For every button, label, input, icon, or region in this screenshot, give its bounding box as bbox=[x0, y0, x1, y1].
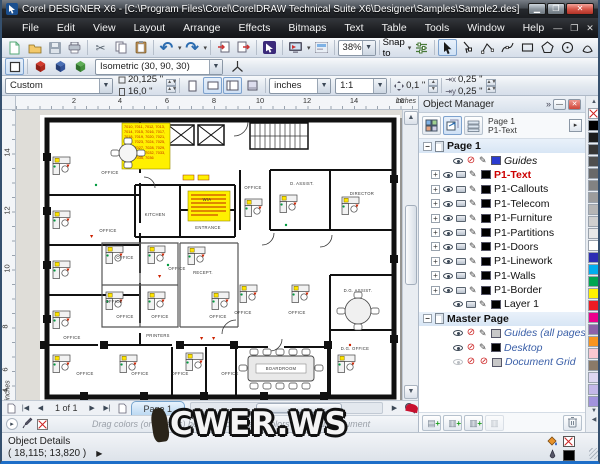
docker-toolbar: Page 1 P1-Text ▸ bbox=[419, 113, 585, 139]
edit-icon[interactable]: ✎ bbox=[469, 257, 478, 266]
color-swatch[interactable] bbox=[588, 264, 600, 275]
undo-dropdown[interactable]: ▾ bbox=[178, 44, 182, 52]
layer-color-chip[interactable] bbox=[481, 199, 491, 208]
layer-color-chip[interactable] bbox=[491, 156, 501, 165]
all-pages-button[interactable] bbox=[223, 77, 242, 94]
horizontal-ruler[interactable]: 2 4 6 8 10 12 14 16 inches bbox=[16, 96, 418, 110]
layer-name[interactable]: P1-Linework bbox=[494, 255, 552, 267]
room-label: D. ASSIST. bbox=[290, 181, 314, 186]
print-button[interactable] bbox=[65, 39, 84, 56]
room-label: BOARDROOM bbox=[266, 366, 297, 371]
edit-icon[interactable]: ✎ bbox=[469, 170, 478, 179]
ruler-origin[interactable] bbox=[2, 96, 16, 110]
room-label: OFFICE bbox=[116, 255, 133, 260]
palette-scroll-up[interactable]: ▲ bbox=[588, 98, 600, 107]
polygon-tool[interactable] bbox=[538, 39, 557, 56]
close-button[interactable]: ✕ bbox=[566, 3, 594, 15]
visibility-icon[interactable] bbox=[453, 345, 463, 351]
axis-icon[interactable] bbox=[228, 58, 247, 75]
visibility-icon[interactable] bbox=[443, 201, 453, 207]
menu-help[interactable]: Help bbox=[514, 19, 554, 37]
import-button[interactable] bbox=[214, 39, 233, 56]
visibility-icon[interactable] bbox=[443, 273, 453, 279]
room-label: OFFICE bbox=[99, 228, 116, 233]
room-label: OFFICE bbox=[209, 314, 226, 319]
nudge-spin2[interactable]: ▼ bbox=[428, 86, 438, 93]
room-label: ENTRANCE bbox=[195, 225, 220, 230]
export-button[interactable] bbox=[234, 39, 253, 56]
palette-flyout[interactable]: ◀ bbox=[588, 416, 600, 425]
edit-icon[interactable]: ✎ bbox=[469, 214, 478, 223]
h-tick: 2 bbox=[72, 96, 76, 105]
no-edit-icon[interactable]: ⊘ bbox=[479, 357, 489, 367]
preset-value: Custom bbox=[10, 80, 43, 91]
orthographic-button[interactable] bbox=[5, 58, 24, 75]
layer-row[interactable]: +✎ P1-Border bbox=[419, 283, 585, 297]
print-icon[interactable] bbox=[456, 272, 466, 279]
room-label: WIA bbox=[203, 197, 212, 202]
redo-button[interactable]: ↷ bbox=[183, 39, 202, 56]
layer-row[interactable]: +✎ P1-Linework bbox=[419, 254, 585, 268]
edit-icon[interactable]: ✎ bbox=[479, 329, 488, 338]
drawing-canvas[interactable]: 7010, 7011, 7012, 7013, 7014, 7015, 7016… bbox=[16, 110, 402, 400]
print-icon[interactable] bbox=[466, 301, 476, 308]
expand-icon[interactable]: + bbox=[431, 214, 440, 223]
v-ruler-unit: inches bbox=[5, 380, 12, 400]
room-label: D.G. OFFICE bbox=[341, 346, 369, 351]
next-page-button[interactable]: ▶ bbox=[86, 402, 99, 414]
nudge-field[interactable]: 0,1 " bbox=[394, 80, 425, 91]
color-swatch[interactable] bbox=[588, 312, 600, 323]
layer-name[interactable]: Layer 1 bbox=[504, 298, 539, 310]
menu-effects[interactable]: Effects bbox=[229, 19, 279, 37]
visibility-icon[interactable] bbox=[443, 230, 453, 236]
layer-name[interactable]: P1-Border bbox=[494, 284, 542, 296]
room-label: OFFICE bbox=[63, 335, 80, 340]
drawing-page[interactable]: 7010, 7011, 7012, 7013, 7014, 7015, 7016… bbox=[40, 115, 400, 400]
zoom-level-value: 38% bbox=[343, 42, 362, 53]
dup-spin-up[interactable]: ▲▼ bbox=[486, 79, 496, 86]
room-label: OFFICE bbox=[116, 314, 133, 319]
vertical-scrollbar[interactable]: ▲ ▼ bbox=[402, 110, 418, 400]
layer-color-chip[interactable] bbox=[481, 242, 491, 251]
visibility-icon[interactable] bbox=[443, 186, 453, 192]
pick-tool[interactable] bbox=[438, 39, 457, 56]
color-swatch[interactable] bbox=[588, 240, 600, 251]
paste-button[interactable] bbox=[131, 39, 150, 56]
color-swatch[interactable] bbox=[588, 120, 600, 131]
preset-combo[interactable]: Custom▼ bbox=[5, 78, 113, 94]
preview-dropdown[interactable]: ▾ bbox=[307, 44, 311, 52]
restore-button[interactable]: ❐ bbox=[547, 3, 565, 15]
page-node[interactable]: − Page 1 bbox=[419, 139, 585, 153]
room-label: OFFICE bbox=[171, 371, 188, 376]
copy-button[interactable] bbox=[111, 39, 130, 56]
curve-tool[interactable] bbox=[478, 39, 497, 56]
fullscreen-preview-button[interactable] bbox=[286, 39, 305, 56]
h-ruler-unit: inches bbox=[396, 98, 416, 105]
menu-layout[interactable]: Layout bbox=[125, 19, 175, 37]
no-print-icon[interactable]: ⊘ bbox=[466, 328, 476, 338]
menu-edit[interactable]: Edit bbox=[48, 19, 84, 37]
palette-scroll-down[interactable]: ▼ bbox=[588, 407, 600, 416]
layer-color-chip[interactable] bbox=[481, 185, 491, 194]
room-label: OFFICE bbox=[151, 314, 168, 319]
layer-color-chip[interactable] bbox=[481, 228, 491, 237]
no-print-icon[interactable]: ⊘ bbox=[466, 343, 476, 353]
layer-name[interactable]: Document Grid bbox=[505, 356, 576, 368]
color-swatch[interactable] bbox=[588, 216, 600, 227]
new-document-button[interactable] bbox=[5, 39, 24, 56]
print-icon[interactable] bbox=[456, 243, 466, 250]
minimize-button[interactable]: ▁ bbox=[528, 3, 546, 15]
size-spin-up[interactable]: ▲▼ bbox=[166, 79, 176, 86]
vertical-scroll-thumb[interactable] bbox=[405, 205, 417, 285]
fill-color-indicator[interactable] bbox=[563, 436, 575, 447]
layer-row[interactable]: +✎ P1-Doors bbox=[419, 240, 585, 254]
vertical-ruler[interactable]: 14 12 10 8 6 4 inches bbox=[2, 110, 16, 400]
menu-bar: File Edit View Layout Arrange Effects Bi… bbox=[2, 18, 598, 38]
add-page-end-button[interactable] bbox=[116, 402, 129, 414]
layer-row[interactable]: +✎ P1-Furniture bbox=[419, 211, 585, 225]
room-label: OFFICE bbox=[288, 310, 305, 315]
new-master-layer-even-button: ▥ bbox=[485, 415, 504, 431]
bezier-tool[interactable] bbox=[498, 39, 517, 56]
current-page-button[interactable] bbox=[243, 77, 262, 94]
layer-row[interactable]: +✎ P1-Callouts bbox=[419, 182, 585, 196]
units-value: inches bbox=[274, 80, 301, 91]
master-page-node[interactable]: − Master Page bbox=[419, 312, 585, 326]
visibility-icon[interactable] bbox=[453, 330, 463, 336]
room-label: OFFICE bbox=[244, 185, 261, 190]
layer-color-chip[interactable] bbox=[481, 214, 491, 223]
color-swatch[interactable] bbox=[588, 156, 600, 167]
docker-title: Object Manager bbox=[423, 99, 494, 110]
expand-icon[interactable]: + bbox=[431, 199, 440, 208]
layer-name[interactable]: P1-Callouts bbox=[494, 183, 548, 195]
layer-color-chip[interactable] bbox=[491, 343, 501, 352]
v-tick: 8 bbox=[1, 324, 10, 328]
room-label: D.G. ASSIST. bbox=[344, 288, 373, 293]
page-width-field[interactable]: 20,125 " bbox=[118, 74, 163, 85]
open-button[interactable] bbox=[25, 39, 44, 56]
rectangle-tool[interactable] bbox=[518, 39, 537, 56]
resize-grip[interactable] bbox=[589, 448, 600, 459]
bspline-tool[interactable] bbox=[578, 39, 597, 56]
edit-icon[interactable]: ✎ bbox=[479, 300, 488, 309]
palette-flyout-button[interactable]: ▸ bbox=[6, 418, 18, 430]
expand-icon[interactable]: + bbox=[431, 170, 440, 179]
layer-color-chip[interactable] bbox=[481, 271, 491, 280]
object-manager-docker: Object Manager » — ✕ Page 1 P1-Text ▸ bbox=[418, 96, 585, 432]
add-page-start-button[interactable] bbox=[4, 402, 17, 414]
room-label: DIRECTOR bbox=[350, 191, 374, 196]
menu-bitmaps[interactable]: Bitmaps bbox=[279, 19, 335, 37]
edit-icon[interactable]: ✎ bbox=[469, 242, 478, 251]
save-button[interactable] bbox=[45, 39, 64, 56]
edit-icon[interactable]: ✎ bbox=[469, 185, 478, 194]
layer-row[interactable]: ⊘⊘ Document Grid bbox=[419, 355, 585, 369]
application-launcher-button[interactable] bbox=[260, 39, 279, 56]
layer-name-active[interactable]: P1-Text bbox=[494, 169, 531, 181]
units-combo[interactable]: inches▼ bbox=[269, 78, 331, 94]
new-master-layer-odd-button[interactable]: ▥+ bbox=[464, 415, 483, 431]
no-print-icon[interactable]: ⊘ bbox=[466, 156, 476, 166]
edit-across-layers-button[interactable] bbox=[443, 116, 462, 135]
size-spin-down[interactable]: ▲▼ bbox=[166, 86, 176, 93]
room-label: OFFICE bbox=[221, 371, 238, 376]
status-expand-arrow[interactable]: ▶ bbox=[96, 449, 102, 458]
layer-color-chip[interactable] bbox=[491, 300, 501, 309]
edit-icon[interactable]: ✎ bbox=[469, 271, 478, 280]
snap-to-dropdown[interactable]: Snap to▾ bbox=[383, 37, 412, 59]
visibility-icon[interactable] bbox=[453, 158, 463, 164]
no-print-icon[interactable]: ⊘ bbox=[466, 357, 476, 367]
print-icon[interactable] bbox=[456, 171, 466, 178]
first-page-button[interactable]: |◀ bbox=[19, 402, 32, 414]
page-icon bbox=[435, 313, 444, 324]
projection-combo-arrow[interactable]: ▼ bbox=[209, 60, 222, 74]
edit-icon[interactable]: ✎ bbox=[469, 199, 478, 208]
menu-table[interactable]: Table bbox=[373, 19, 416, 37]
edit-icon[interactable]: ✎ bbox=[479, 156, 488, 165]
page-indicator: 1 of 1 bbox=[49, 403, 84, 413]
window-title: Corel DESIGNER X6 - [C:\Program Files\Co… bbox=[22, 4, 519, 15]
v-tick: 10 bbox=[3, 264, 12, 272]
status-label: Object Details bbox=[8, 436, 70, 447]
app-window: Corel DESIGNER X6 - [C:\Program Files\Co… bbox=[0, 0, 600, 464]
edit-icon[interactable]: ✎ bbox=[469, 228, 478, 237]
color-swatch[interactable] bbox=[588, 384, 600, 395]
h-tick: 14 bbox=[350, 96, 358, 105]
snap-to-label: Snap to bbox=[383, 37, 405, 59]
layer-name[interactable]: P1-Walls bbox=[494, 270, 536, 282]
collapse-icon[interactable]: − bbox=[423, 142, 432, 151]
color-swatch[interactable] bbox=[588, 144, 600, 155]
zoom-combo-arrow[interactable]: ▼ bbox=[362, 41, 375, 55]
color-swatch[interactable] bbox=[588, 276, 600, 287]
color-swatch[interactable] bbox=[588, 192, 600, 203]
layer-row[interactable]: ⊘✎ Desktop bbox=[419, 340, 585, 354]
color-swatch[interactable] bbox=[588, 300, 600, 311]
print-icon[interactable] bbox=[456, 186, 466, 193]
visibility-icon-disabled[interactable] bbox=[453, 359, 463, 365]
drawing-scale-combo[interactable]: 1:1▼ bbox=[335, 78, 387, 94]
print-icon[interactable] bbox=[456, 200, 466, 207]
expand-icon[interactable]: + bbox=[431, 271, 440, 280]
layer-row[interactable]: +✎ P1-Text bbox=[419, 168, 585, 182]
title-bar: Corel DESIGNER X6 - [C:\Program Files\Co… bbox=[2, 0, 598, 18]
color-swatch[interactable] bbox=[588, 168, 600, 179]
layer-color-chip[interactable] bbox=[492, 358, 502, 367]
app-icon bbox=[6, 3, 18, 15]
delete-layer-button[interactable] bbox=[563, 415, 582, 431]
color-swatch[interactable] bbox=[588, 132, 600, 143]
visibility-icon[interactable] bbox=[443, 258, 453, 264]
layer-name[interactable]: P1-Furniture bbox=[494, 212, 552, 224]
fill-icon bbox=[546, 435, 559, 447]
color-swatch[interactable] bbox=[588, 252, 600, 263]
page-node-label: Page 1 bbox=[447, 140, 481, 152]
expand-icon[interactable]: + bbox=[431, 286, 440, 295]
master-page-label: Master Page bbox=[447, 313, 509, 325]
layer-name[interactable]: Guides (all pages) bbox=[504, 327, 585, 339]
ellipse-tool[interactable] bbox=[558, 39, 577, 56]
zoom-level-combo[interactable]: 38%▼ bbox=[338, 40, 376, 56]
cube-top-button[interactable] bbox=[31, 58, 50, 75]
room-label: OFFICE bbox=[76, 371, 93, 376]
layer-name[interactable]: P1-Telecom bbox=[494, 198, 549, 210]
layer-name[interactable]: P1-Partitions bbox=[494, 227, 554, 239]
layer-row[interactable]: +✎ P1-Partitions bbox=[419, 225, 585, 239]
welcome-screen-button[interactable] bbox=[312, 39, 331, 56]
menu-window[interactable]: Window bbox=[458, 19, 513, 37]
duplicate-x-field[interactable]: ⇥x0,25 " bbox=[445, 74, 482, 85]
undo-button[interactable]: ↶ bbox=[157, 39, 176, 56]
new-master-layer-all-button[interactable]: ▥+ bbox=[443, 415, 462, 431]
visibility-icon[interactable] bbox=[443, 287, 453, 293]
v-tick: 14 bbox=[3, 148, 12, 156]
dup-spin-down[interactable]: ▲▼ bbox=[486, 86, 496, 93]
scroll-down-button[interactable]: ▼ bbox=[404, 385, 418, 399]
room-label: RECEPT. bbox=[193, 270, 213, 275]
scroll-up-button[interactable]: ▲ bbox=[404, 111, 418, 125]
room-label: OFFICE bbox=[168, 266, 185, 271]
color-swatch[interactable] bbox=[588, 336, 600, 347]
room-label: KITCHEN bbox=[145, 212, 165, 217]
collapse-icon[interactable]: − bbox=[423, 314, 432, 323]
projected-axes-combo[interactable]: Isometric (30, 90, 30)▼ bbox=[95, 59, 223, 75]
print-icon[interactable] bbox=[456, 229, 466, 236]
menu-file[interactable]: File bbox=[13, 19, 48, 37]
color-swatch[interactable] bbox=[588, 288, 600, 299]
room-label: PRINTERS bbox=[146, 333, 170, 338]
no-fill-swatch[interactable] bbox=[588, 108, 600, 119]
docker-close-button[interactable]: ✕ bbox=[568, 99, 581, 110]
print-icon[interactable] bbox=[456, 258, 466, 265]
eyedropper-icon[interactable] bbox=[22, 417, 33, 431]
cursor-coordinates: ( 18,115; 13,820 ) bbox=[8, 448, 86, 459]
visibility-icon[interactable] bbox=[443, 244, 453, 250]
layer-row[interactable]: ✎ Layer 1 bbox=[419, 297, 585, 311]
expand-icon[interactable]: + bbox=[431, 242, 440, 251]
h-tick: 10 bbox=[256, 96, 264, 105]
docker-flyout-chevron[interactable]: » bbox=[546, 99, 551, 109]
last-page-button[interactable]: ▶| bbox=[101, 402, 114, 414]
layer-tree: − Page 1 ⊘✎ Guides +✎ P1-Text +✎ P1-Call… bbox=[419, 139, 585, 413]
outline-icon bbox=[546, 449, 559, 461]
color-swatch[interactable] bbox=[588, 180, 600, 191]
new-layer-button[interactable]: ▤+ bbox=[422, 415, 441, 431]
docker-minimize-button[interactable]: — bbox=[553, 99, 566, 110]
layer-name[interactable]: Guides bbox=[504, 155, 537, 167]
color-swatch[interactable] bbox=[588, 396, 600, 407]
color-swatch[interactable] bbox=[588, 348, 600, 359]
show-object-properties-button[interactable] bbox=[422, 116, 441, 135]
portrait-button[interactable] bbox=[183, 77, 202, 94]
menu-text[interactable]: Text bbox=[335, 19, 372, 37]
scroll-right-button[interactable]: ▶ bbox=[388, 402, 401, 414]
expand-icon[interactable]: + bbox=[431, 257, 440, 266]
v-tick: 6 bbox=[1, 367, 10, 371]
outline-color-indicator[interactable] bbox=[563, 450, 575, 461]
visibility-icon[interactable] bbox=[453, 301, 463, 307]
docker-titlebar: Object Manager » — ✕ bbox=[419, 96, 585, 113]
visibility-icon[interactable] bbox=[443, 215, 453, 221]
color-swatch[interactable] bbox=[588, 360, 600, 371]
layer-color-chip[interactable] bbox=[491, 329, 501, 338]
no-color-swatch[interactable] bbox=[37, 419, 48, 430]
color-swatch[interactable] bbox=[588, 324, 600, 335]
prev-page-button[interactable]: ◀ bbox=[34, 402, 47, 414]
layer-manager-view-button[interactable] bbox=[464, 116, 483, 135]
layer-name[interactable]: P1-Doors bbox=[494, 241, 538, 253]
expand-icon[interactable]: + bbox=[431, 228, 440, 237]
active-layer-label: P1-Text bbox=[488, 126, 517, 135]
redo-dropdown[interactable]: ▾ bbox=[204, 44, 208, 52]
layer-color-chip[interactable] bbox=[481, 170, 491, 179]
edit-icon[interactable]: ✎ bbox=[469, 286, 478, 295]
floor-plan: 7010, 7011, 7012, 7013, 7014, 7015, 7016… bbox=[40, 115, 400, 400]
projection-toolbar: Isometric (30, 90, 30)▼ bbox=[2, 58, 598, 76]
print-icon[interactable] bbox=[456, 215, 466, 222]
property-bar: Custom▼ 20,125 " 16,0 " ▲▼▲▼ inches▼ 1:1… bbox=[2, 76, 598, 96]
print-icon[interactable] bbox=[456, 287, 466, 294]
edit-icon[interactable]: ✎ bbox=[479, 343, 488, 352]
color-swatch[interactable] bbox=[588, 204, 600, 215]
scale-value: 1:1 bbox=[340, 80, 353, 91]
fill-outline-indicators bbox=[546, 435, 576, 461]
cube-side-button[interactable] bbox=[71, 58, 90, 75]
shape-tool[interactable] bbox=[458, 39, 477, 56]
room-label: OFFICE bbox=[105, 299, 122, 304]
watermark: CWER.WS bbox=[170, 406, 348, 442]
landscape-button[interactable] bbox=[203, 77, 222, 94]
color-swatch[interactable] bbox=[588, 372, 600, 383]
options-button[interactable] bbox=[412, 39, 431, 56]
layer-row[interactable]: +✎ P1-Telecom bbox=[419, 197, 585, 211]
visibility-icon[interactable] bbox=[443, 172, 453, 178]
cube-front-button[interactable] bbox=[51, 58, 70, 75]
expand-icon[interactable]: + bbox=[431, 185, 440, 194]
h-tick: 8 bbox=[212, 96, 216, 105]
page-icon bbox=[435, 141, 444, 152]
docker-options-button[interactable]: ▸ bbox=[569, 119, 582, 132]
room-label: OFFICE bbox=[131, 371, 148, 376]
mdi-minimize-button[interactable]: — bbox=[553, 23, 562, 34]
menu-arrange[interactable]: Arrange bbox=[174, 19, 229, 37]
layer-row[interactable]: ⊘✎ Guides (all pages) bbox=[419, 326, 585, 340]
color-palette: ▲ ▼ ◀ bbox=[585, 96, 600, 432]
layer-row[interactable]: +✎ P1-Walls bbox=[419, 269, 585, 283]
docker-footer: ▤+ ▥+ ▥+ ▥ bbox=[419, 413, 585, 432]
h-tick: 6 bbox=[165, 96, 169, 105]
mdi-restore-button[interactable]: ❐ bbox=[570, 23, 578, 34]
layer-name[interactable]: Desktop bbox=[504, 342, 543, 354]
menu-tools[interactable]: Tools bbox=[416, 19, 459, 37]
layer-color-chip[interactable] bbox=[481, 286, 491, 295]
projection-preset: Isometric (30, 90, 30) bbox=[100, 61, 190, 72]
menu-view[interactable]: View bbox=[84, 19, 125, 37]
layer-color-chip[interactable] bbox=[481, 257, 491, 266]
nudge-spin[interactable]: ▲ bbox=[428, 79, 438, 86]
layer-row[interactable]: ⊘✎ Guides bbox=[419, 153, 585, 167]
cut-button[interactable]: ✂ bbox=[91, 39, 110, 56]
h-tick: 4 bbox=[118, 96, 122, 105]
mdi-close-button[interactable]: ✕ bbox=[586, 23, 594, 34]
workspace: 2 4 6 8 10 12 14 16 inches 14 12 10 8 6 … bbox=[2, 96, 600, 432]
color-swatch[interactable] bbox=[588, 228, 600, 239]
